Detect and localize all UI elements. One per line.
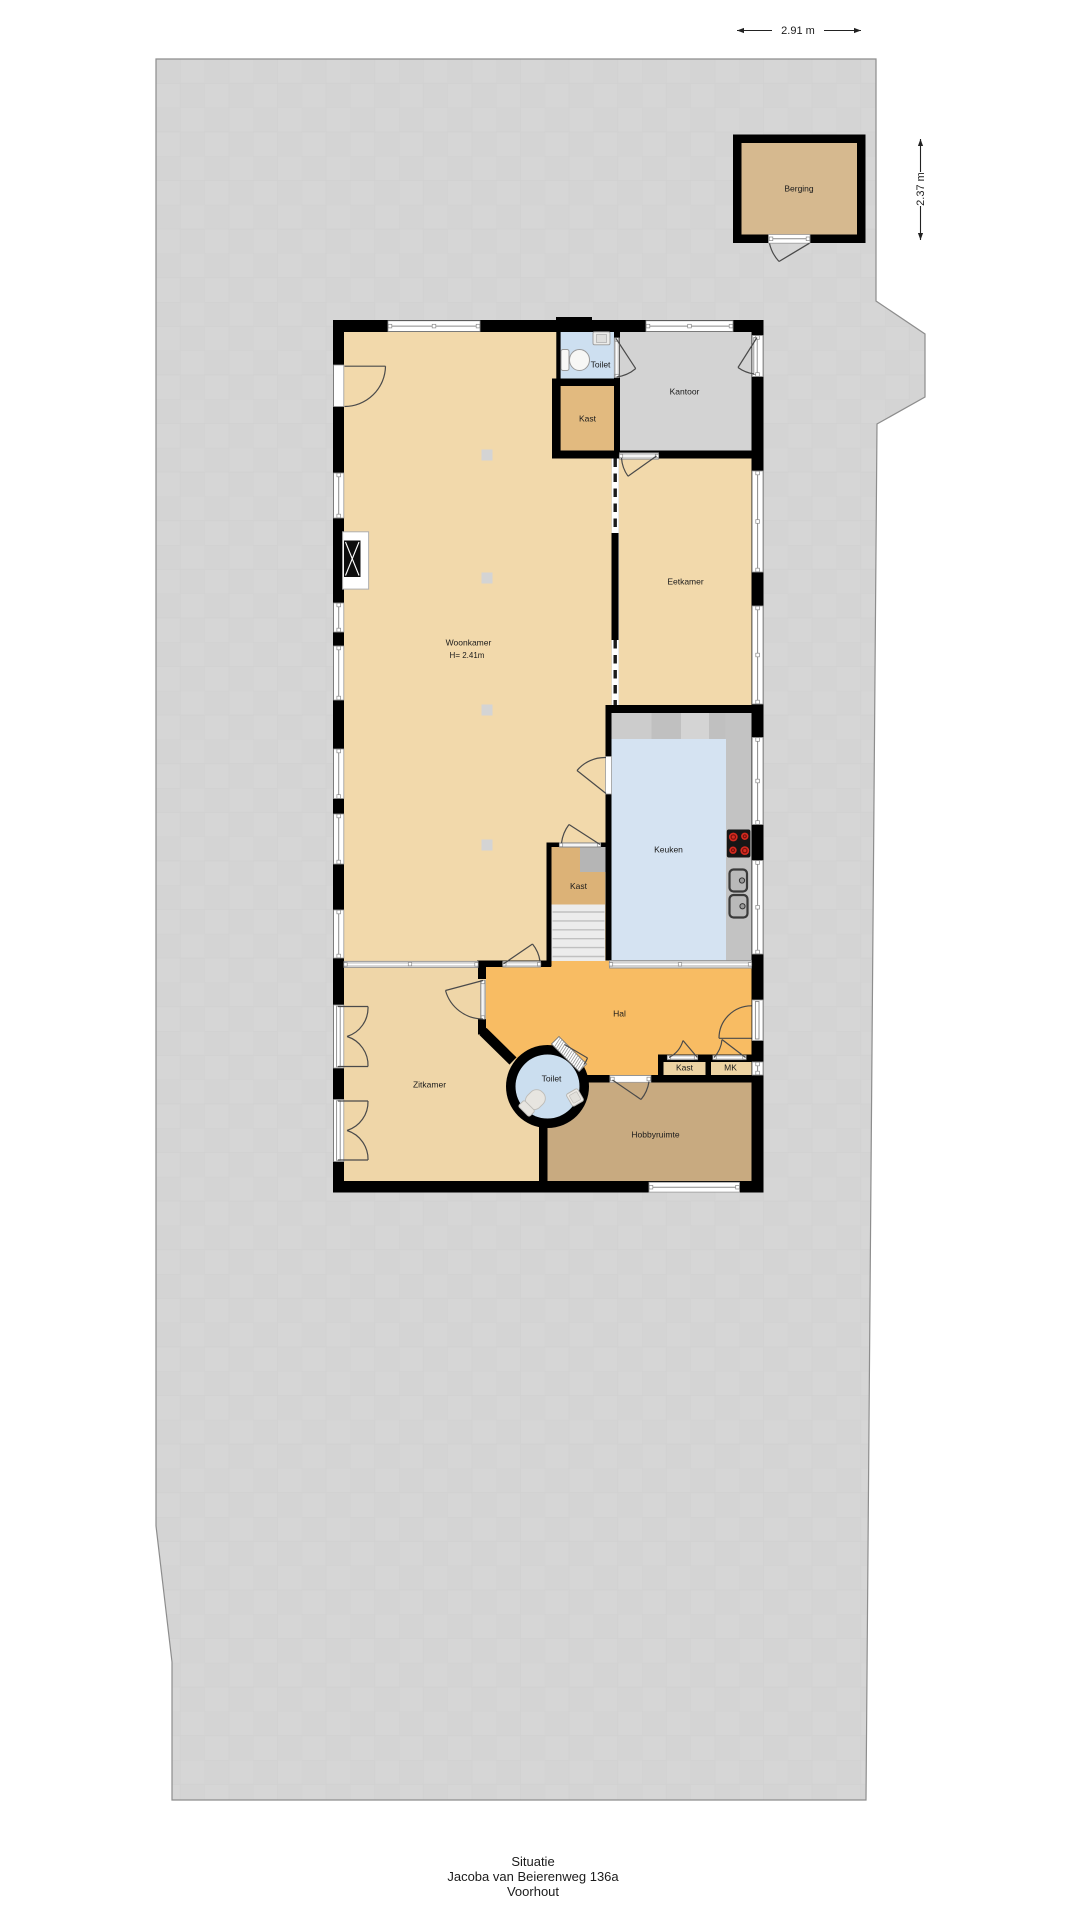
svg-text:Jacoba van Beierenweg 136a: Jacoba van Beierenweg 136a <box>447 1869 619 1884</box>
svg-text:H= 2.41m: H= 2.41m <box>450 651 485 660</box>
svg-text:2.91 m: 2.91 m <box>781 25 815 37</box>
svg-text:Keuken: Keuken <box>654 845 683 855</box>
svg-text:MK: MK <box>724 1063 737 1073</box>
svg-text:Eetkamer: Eetkamer <box>667 577 704 587</box>
svg-text:Hal: Hal <box>613 1009 626 1019</box>
svg-text:Kast: Kast <box>676 1063 694 1073</box>
svg-text:Berging: Berging <box>784 184 814 194</box>
svg-text:Toilet: Toilet <box>542 1074 562 1084</box>
svg-text:Kast: Kast <box>579 414 597 424</box>
svg-text:Kantoor: Kantoor <box>670 387 700 397</box>
svg-text:Voorhout: Voorhout <box>507 1884 559 1899</box>
svg-text:Hobbyruimte: Hobbyruimte <box>631 1130 679 1140</box>
svg-text:Situatie: Situatie <box>511 1854 554 1869</box>
svg-text:Woonkamer: Woonkamer <box>446 638 492 648</box>
svg-text:Zitkamer: Zitkamer <box>413 1080 446 1090</box>
svg-text:2.37 m: 2.37 m <box>915 172 927 206</box>
svg-text:Kast: Kast <box>570 881 588 891</box>
svg-text:Toilet: Toilet <box>591 360 611 370</box>
